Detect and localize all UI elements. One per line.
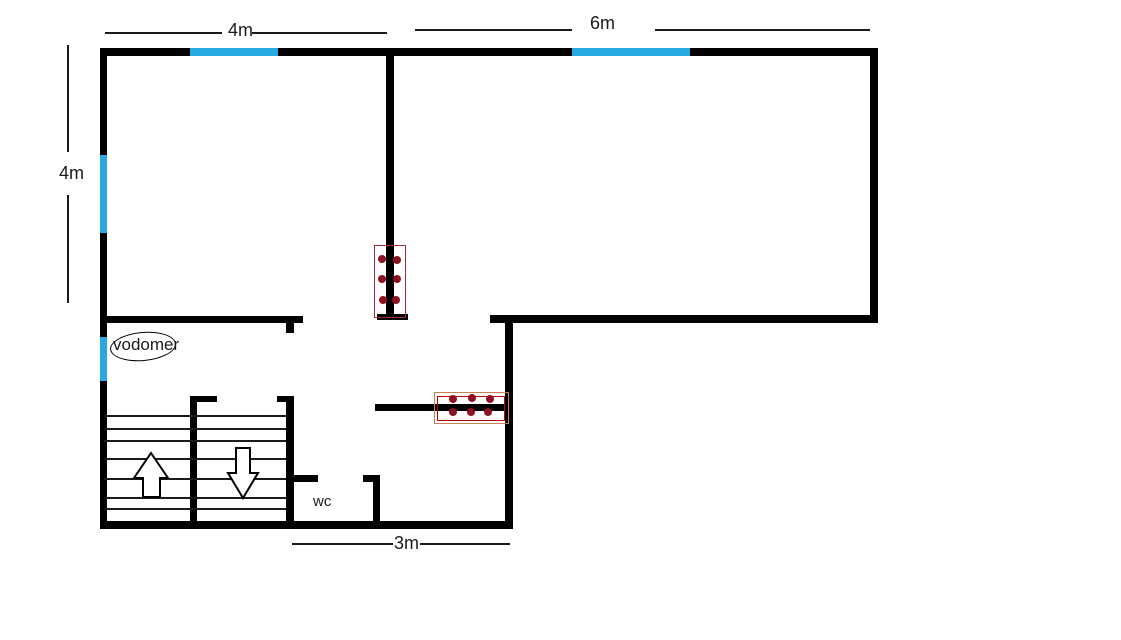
dimension-label-4m-top: 4m bbox=[228, 20, 253, 41]
water-meter-label: vodomer bbox=[113, 335, 179, 355]
dim-line-3m-left-seg bbox=[292, 543, 393, 545]
stairs-divider-stub bbox=[190, 396, 217, 402]
dim-line-4m-top-left-seg bbox=[105, 32, 222, 34]
down-arrow-icon bbox=[224, 445, 264, 501]
dim-line-left-4m-upper-seg bbox=[67, 45, 69, 152]
stair-step-line bbox=[104, 428, 286, 430]
window-left-lower bbox=[100, 337, 107, 381]
stair-step-line bbox=[104, 440, 286, 442]
dim-line-6m-right-seg bbox=[655, 29, 870, 31]
outer-left-wall bbox=[100, 48, 107, 528]
desk-block-vertical-chair-dot bbox=[378, 255, 386, 263]
desk-block-horizontal-chair-dot bbox=[467, 408, 475, 416]
stair-step-line bbox=[104, 415, 286, 417]
dimension-label-6m-top: 6m bbox=[590, 13, 615, 34]
dim-line-3m-right-seg bbox=[420, 543, 510, 545]
window-top-left bbox=[190, 48, 278, 56]
desk-block-horizontal-chair-dot bbox=[486, 395, 494, 403]
up-arrow-icon bbox=[130, 450, 174, 502]
dimension-label-4m-left: 4m bbox=[59, 163, 84, 184]
right-room-bottom-wall bbox=[490, 315, 878, 323]
desk-block-vertical-chair-dot bbox=[393, 256, 401, 264]
stair-step-line bbox=[104, 508, 286, 510]
desk-block-horizontal-chair-dot bbox=[449, 395, 457, 403]
desk-block-vertical-chair-dot bbox=[378, 275, 386, 283]
window-top-right bbox=[572, 48, 690, 56]
dimension-label-3m-bottom: 3m bbox=[394, 533, 419, 554]
window-left-upper bbox=[100, 155, 107, 233]
wc-label: wc bbox=[313, 493, 331, 510]
desk-block-horizontal-chair-dot bbox=[449, 408, 457, 416]
wc-right-wall bbox=[373, 475, 380, 527]
wc-top-wall-left bbox=[286, 475, 318, 482]
dim-line-6m-left-seg bbox=[415, 29, 572, 31]
desk-block-horizontal-chair-dot bbox=[484, 408, 492, 416]
left-room-bottom-wall bbox=[103, 316, 303, 323]
outer-bottom-wall bbox=[100, 521, 513, 529]
desk-block-vertical-chair-dot bbox=[392, 296, 400, 304]
desk-block-vertical-chair-dot bbox=[393, 275, 401, 283]
stairwell-right-wall-stub bbox=[277, 396, 294, 402]
outer-right-wall bbox=[870, 48, 878, 322]
dim-line-4m-top-right-seg bbox=[252, 32, 387, 34]
floor-plan-canvas: 4m 6m 4m 3m vodomer wc bbox=[0, 0, 1121, 640]
left-room-wall-stub bbox=[286, 323, 294, 333]
stairwell-right-wall bbox=[286, 398, 294, 525]
dim-line-left-4m-lower-seg bbox=[67, 195, 69, 303]
desk-block-horizontal-chair-dot bbox=[468, 394, 476, 402]
stairs-divider-wall bbox=[190, 399, 197, 525]
desk-block-vertical-chair-dot bbox=[379, 296, 387, 304]
